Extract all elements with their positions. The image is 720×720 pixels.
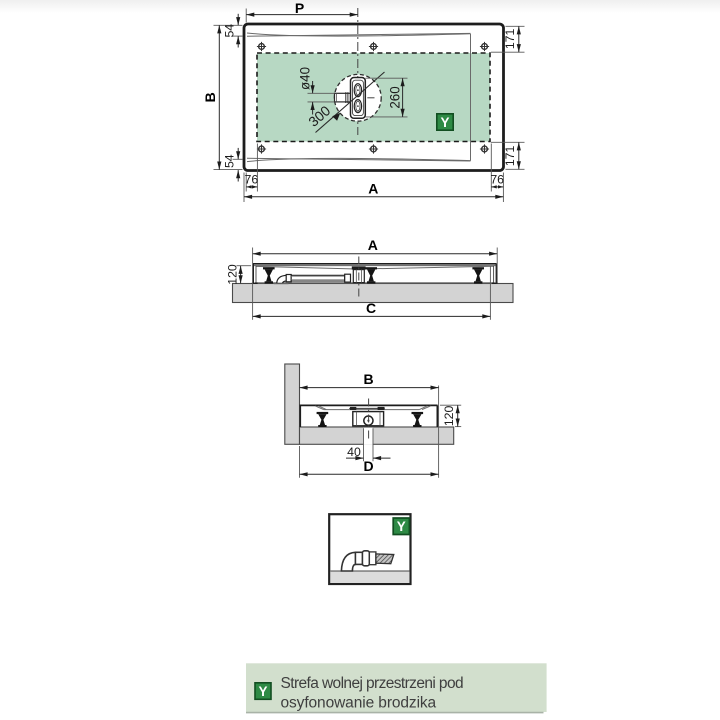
svg-text:171: 171 xyxy=(503,145,517,166)
svg-text:54: 54 xyxy=(223,24,237,38)
svg-text:Y: Y xyxy=(397,519,406,534)
svg-text:A: A xyxy=(368,237,378,253)
svg-text:A: A xyxy=(368,180,378,196)
svg-text:Strefa wolnej przestrzeni pod: Strefa wolnej przestrzeni pod xyxy=(281,675,463,692)
svg-text:osyfonowanie brodzika: osyfonowanie brodzika xyxy=(281,694,437,711)
svg-text:Y: Y xyxy=(258,684,267,699)
svg-text:40: 40 xyxy=(347,445,361,459)
svg-text:ø40: ø40 xyxy=(298,67,313,90)
svg-text:D: D xyxy=(364,458,374,474)
svg-text:120: 120 xyxy=(442,405,456,426)
svg-text:P: P xyxy=(295,0,304,16)
svg-text:171: 171 xyxy=(503,28,517,49)
svg-text:B: B xyxy=(364,371,374,387)
svg-text:76: 76 xyxy=(245,172,259,186)
svg-text:54: 54 xyxy=(223,154,237,168)
svg-text:260: 260 xyxy=(387,86,402,108)
svg-text:C: C xyxy=(366,300,376,316)
svg-text:B: B xyxy=(202,92,218,102)
svg-text:Y: Y xyxy=(440,115,449,130)
svg-text:120: 120 xyxy=(226,264,240,285)
svg-text:76: 76 xyxy=(490,172,504,186)
